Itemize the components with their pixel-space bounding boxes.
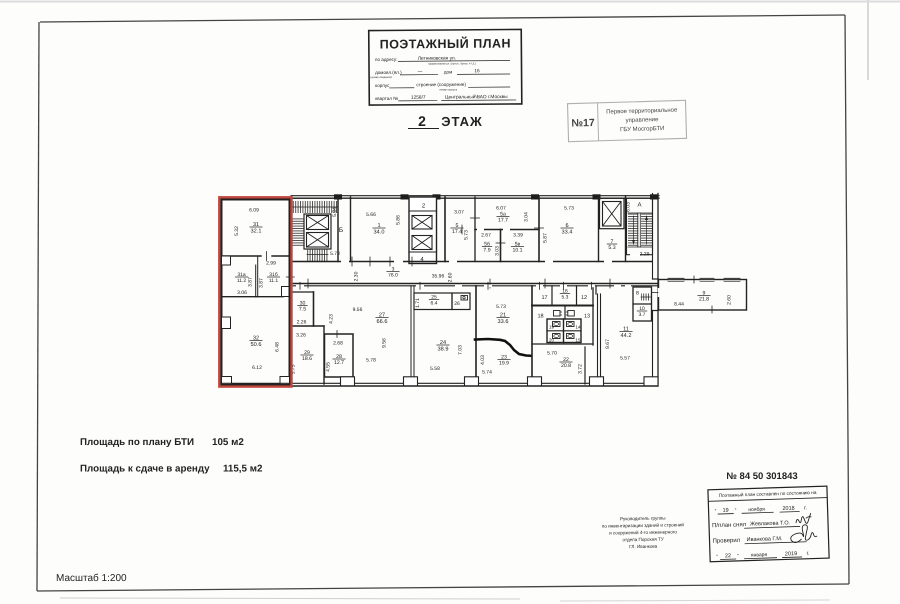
svg-text:7.03: 7.03 <box>458 345 464 355</box>
svg-text:9.56: 9.56 <box>382 338 388 348</box>
svg-text:50.6: 50.6 <box>251 342 262 348</box>
svg-text:№ 84 50 301843: № 84 50 301843 <box>726 471 797 482</box>
svg-text:по инвентаризации зданий и стр: по инвентаризации зданий и строений <box>602 522 685 528</box>
svg-text:корпус: корпус <box>375 83 390 88</box>
svg-text:20.8: 20.8 <box>561 363 571 369</box>
svg-text:5.3: 5.3 <box>562 295 569 301</box>
svg-text:ноября: ноября <box>748 507 765 514</box>
svg-text:17.4: 17.4 <box>452 229 462 235</box>
svg-text:11.1: 11.1 <box>269 278 279 284</box>
svg-text:г.: г. <box>806 551 810 557</box>
svg-text:10.1: 10.1 <box>512 248 522 254</box>
svg-text:3.07: 3.07 <box>454 210 464 216</box>
svg-text:33.6: 33.6 <box>498 319 509 325</box>
svg-text:г.: г. <box>804 505 808 511</box>
svg-text:15: 15 <box>576 338 581 343</box>
svg-text:2.60: 2.60 <box>727 295 733 305</box>
svg-text:3.87: 3.87 <box>248 277 254 287</box>
svg-text:2.99: 2.99 <box>266 261 276 267</box>
svg-text:5.78: 5.78 <box>330 251 340 257</box>
svg-text:34.0: 34.0 <box>374 230 385 236</box>
svg-text:дом: дом <box>444 69 452 74</box>
svg-text:105 м2: 105 м2 <box>212 437 244 448</box>
svg-text:ГЛ. Иванкова: ГЛ. Иванкова <box>629 544 658 549</box>
svg-text:Проверил: Проверил <box>712 537 740 545</box>
svg-text:5.78: 5.78 <box>366 358 376 364</box>
svg-text:6.03: 6.03 <box>626 202 632 212</box>
svg-text:17.7: 17.7 <box>498 218 508 224</box>
svg-text:18.6: 18.6 <box>302 356 312 362</box>
svg-text:22: 22 <box>725 553 731 559</box>
svg-text:38.9: 38.9 <box>438 347 449 353</box>
svg-text:5.87: 5.87 <box>543 233 549 243</box>
svg-text:11.2: 11.2 <box>237 278 247 284</box>
svg-text:2: 2 <box>418 113 426 129</box>
svg-text:3.26: 3.26 <box>296 333 306 339</box>
svg-text:5.57: 5.57 <box>620 356 630 362</box>
svg-text:января: января <box>751 552 768 559</box>
svg-text:Жевлакова Т.О.: Жевлакова Т.О. <box>750 520 791 527</box>
svg-text:(номер владения): (номер владения) <box>370 76 392 79</box>
svg-text:П/план снял: П/план снял <box>712 521 747 529</box>
svg-text:А: А <box>637 202 641 209</box>
svg-text:9.56: 9.56 <box>353 307 363 313</box>
svg-text:16: 16 <box>474 68 480 74</box>
svg-text:1258/7: 1258/7 <box>411 95 426 101</box>
svg-text:3.04: 3.04 <box>524 212 530 222</box>
svg-text:3.7: 3.7 <box>639 312 646 318</box>
svg-text:19: 19 <box>549 325 554 330</box>
svg-text:19: 19 <box>722 508 728 514</box>
svg-text:”: ” <box>735 508 737 514</box>
svg-text:“: “ <box>715 509 717 515</box>
svg-text:7.5: 7.5 <box>299 307 306 313</box>
svg-text:Масштаб 1:200: Масштаб 1:200 <box>56 573 127 584</box>
svg-text:76.0: 76.0 <box>388 273 398 279</box>
svg-text:4.55: 4.55 <box>326 362 332 372</box>
svg-text:33.4: 33.4 <box>562 230 573 236</box>
svg-text:ГБУ МосгорБТИ: ГБУ МосгорБТИ <box>620 125 664 133</box>
svg-text:32.1: 32.1 <box>251 229 262 235</box>
svg-text:Иванкова Г.М.: Иванкова Г.М. <box>747 536 783 543</box>
svg-text:3.06: 3.06 <box>237 290 247 296</box>
svg-text:12: 12 <box>581 295 587 301</box>
svg-text:66.6: 66.6 <box>377 319 388 325</box>
svg-text:5.73: 5.73 <box>496 304 506 310</box>
svg-text:26: 26 <box>454 301 460 307</box>
svg-text:по адресу:: по адресу: <box>375 57 398 62</box>
svg-text:6.09: 6.09 <box>249 208 259 214</box>
svg-text:4.23: 4.23 <box>329 314 335 324</box>
svg-text:наименование ул. (просп., буль: наименование ул. (просп., бульв. и т.д.) <box>428 62 476 65</box>
svg-text:115,5 м2: 115,5 м2 <box>223 464 263 475</box>
svg-text:5.32: 5.32 <box>234 226 240 236</box>
svg-text:Площадь по плану БТИ: Площадь по плану БТИ <box>80 437 194 448</box>
svg-text:Площадь к сдаче в аренду: Площадь к сдаче в аренду <box>80 464 210 475</box>
svg-text:и сооружений 4-го инженерного: и сооружений 4-го инженерного <box>609 529 677 535</box>
svg-text:35.96: 35.96 <box>432 274 445 280</box>
svg-text:домовл.(вл.): домовл.(вл.) <box>375 70 402 75</box>
svg-text:5.94: 5.94 <box>332 207 338 217</box>
svg-text:ПОЭТАЖНЫЙ ПЛАН: ПОЭТАЖНЫЙ ПЛАН <box>380 35 511 51</box>
svg-text:3.39: 3.39 <box>513 233 523 239</box>
svg-text:Руководитель группы: Руководитель группы <box>620 516 666 522</box>
svg-text:Центральный\ВАО г.Москвы: Центральный\ВАО г.Москвы <box>445 94 508 100</box>
svg-text:21.8: 21.8 <box>699 297 709 303</box>
svg-text:7.9: 7.9 <box>483 248 490 254</box>
svg-text:1.71: 1.71 <box>415 298 421 308</box>
svg-text:4.03: 4.03 <box>480 355 486 365</box>
svg-text:9.67: 9.67 <box>605 339 611 349</box>
svg-text:5.66: 5.66 <box>366 212 376 218</box>
svg-text:2018: 2018 <box>782 506 794 512</box>
svg-text:6.48: 6.48 <box>275 342 281 352</box>
svg-text:12.7: 12.7 <box>334 360 344 366</box>
svg-text:18: 18 <box>537 314 543 320</box>
svg-text:Поэтажный план составлен по со: Поэтажный план составлен по состоянию на <box>719 490 817 498</box>
svg-text:2.68: 2.68 <box>333 341 343 347</box>
svg-text:управление: управление <box>626 117 660 124</box>
svg-text:2.29: 2.29 <box>640 252 650 258</box>
svg-text:ЭТАЖ: ЭТАЖ <box>441 114 483 129</box>
svg-text:№17: №17 <box>571 117 595 130</box>
svg-text:2.30: 2.30 <box>354 271 360 281</box>
svg-text:3.87: 3.87 <box>259 278 265 288</box>
svg-text:2.67: 2.67 <box>481 233 491 239</box>
svg-text:Б: Б <box>339 227 343 234</box>
svg-text:5.86: 5.86 <box>396 215 402 225</box>
svg-text:квартал №: квартал № <box>375 96 398 101</box>
svg-text:14: 14 <box>576 325 581 330</box>
svg-text:строение (сооружение): строение (сооружение) <box>416 82 466 87</box>
svg-text:44.2: 44.2 <box>621 333 632 339</box>
svg-text:5.70: 5.70 <box>547 351 557 357</box>
svg-text:отдела Порохня ТУ: отдела Порохня ТУ <box>622 537 663 543</box>
svg-text:13: 13 <box>584 314 590 320</box>
svg-text:19.9: 19.9 <box>499 361 509 367</box>
svg-text:2019: 2019 <box>785 551 797 557</box>
svg-text:8.44: 8.44 <box>674 302 684 308</box>
svg-text:6.4: 6.4 <box>431 301 438 307</box>
svg-text:5.74: 5.74 <box>482 370 492 376</box>
svg-text:6.12: 6.12 <box>252 365 262 371</box>
svg-text:17: 17 <box>541 295 547 301</box>
svg-text:“: “ <box>716 554 718 560</box>
svg-text:5.73: 5.73 <box>564 206 574 212</box>
svg-text:5.58: 5.58 <box>430 366 440 372</box>
svg-text:Первое территориальное: Первое территориальное <box>606 107 678 116</box>
svg-text:5.3: 5.3 <box>608 245 615 251</box>
svg-text:3.03: 3.03 <box>495 246 501 256</box>
svg-text:—: — <box>418 69 423 74</box>
svg-text:3.72: 3.72 <box>578 364 584 374</box>
svg-text:2.60: 2.60 <box>448 272 454 282</box>
svg-text:”: ” <box>737 553 739 559</box>
svg-text:8: 8 <box>636 291 639 297</box>
svg-text:2.26: 2.26 <box>297 320 307 326</box>
svg-text:5.73: 5.73 <box>464 230 470 240</box>
svg-text:номер корпуса: номер корпуса <box>439 88 457 91</box>
